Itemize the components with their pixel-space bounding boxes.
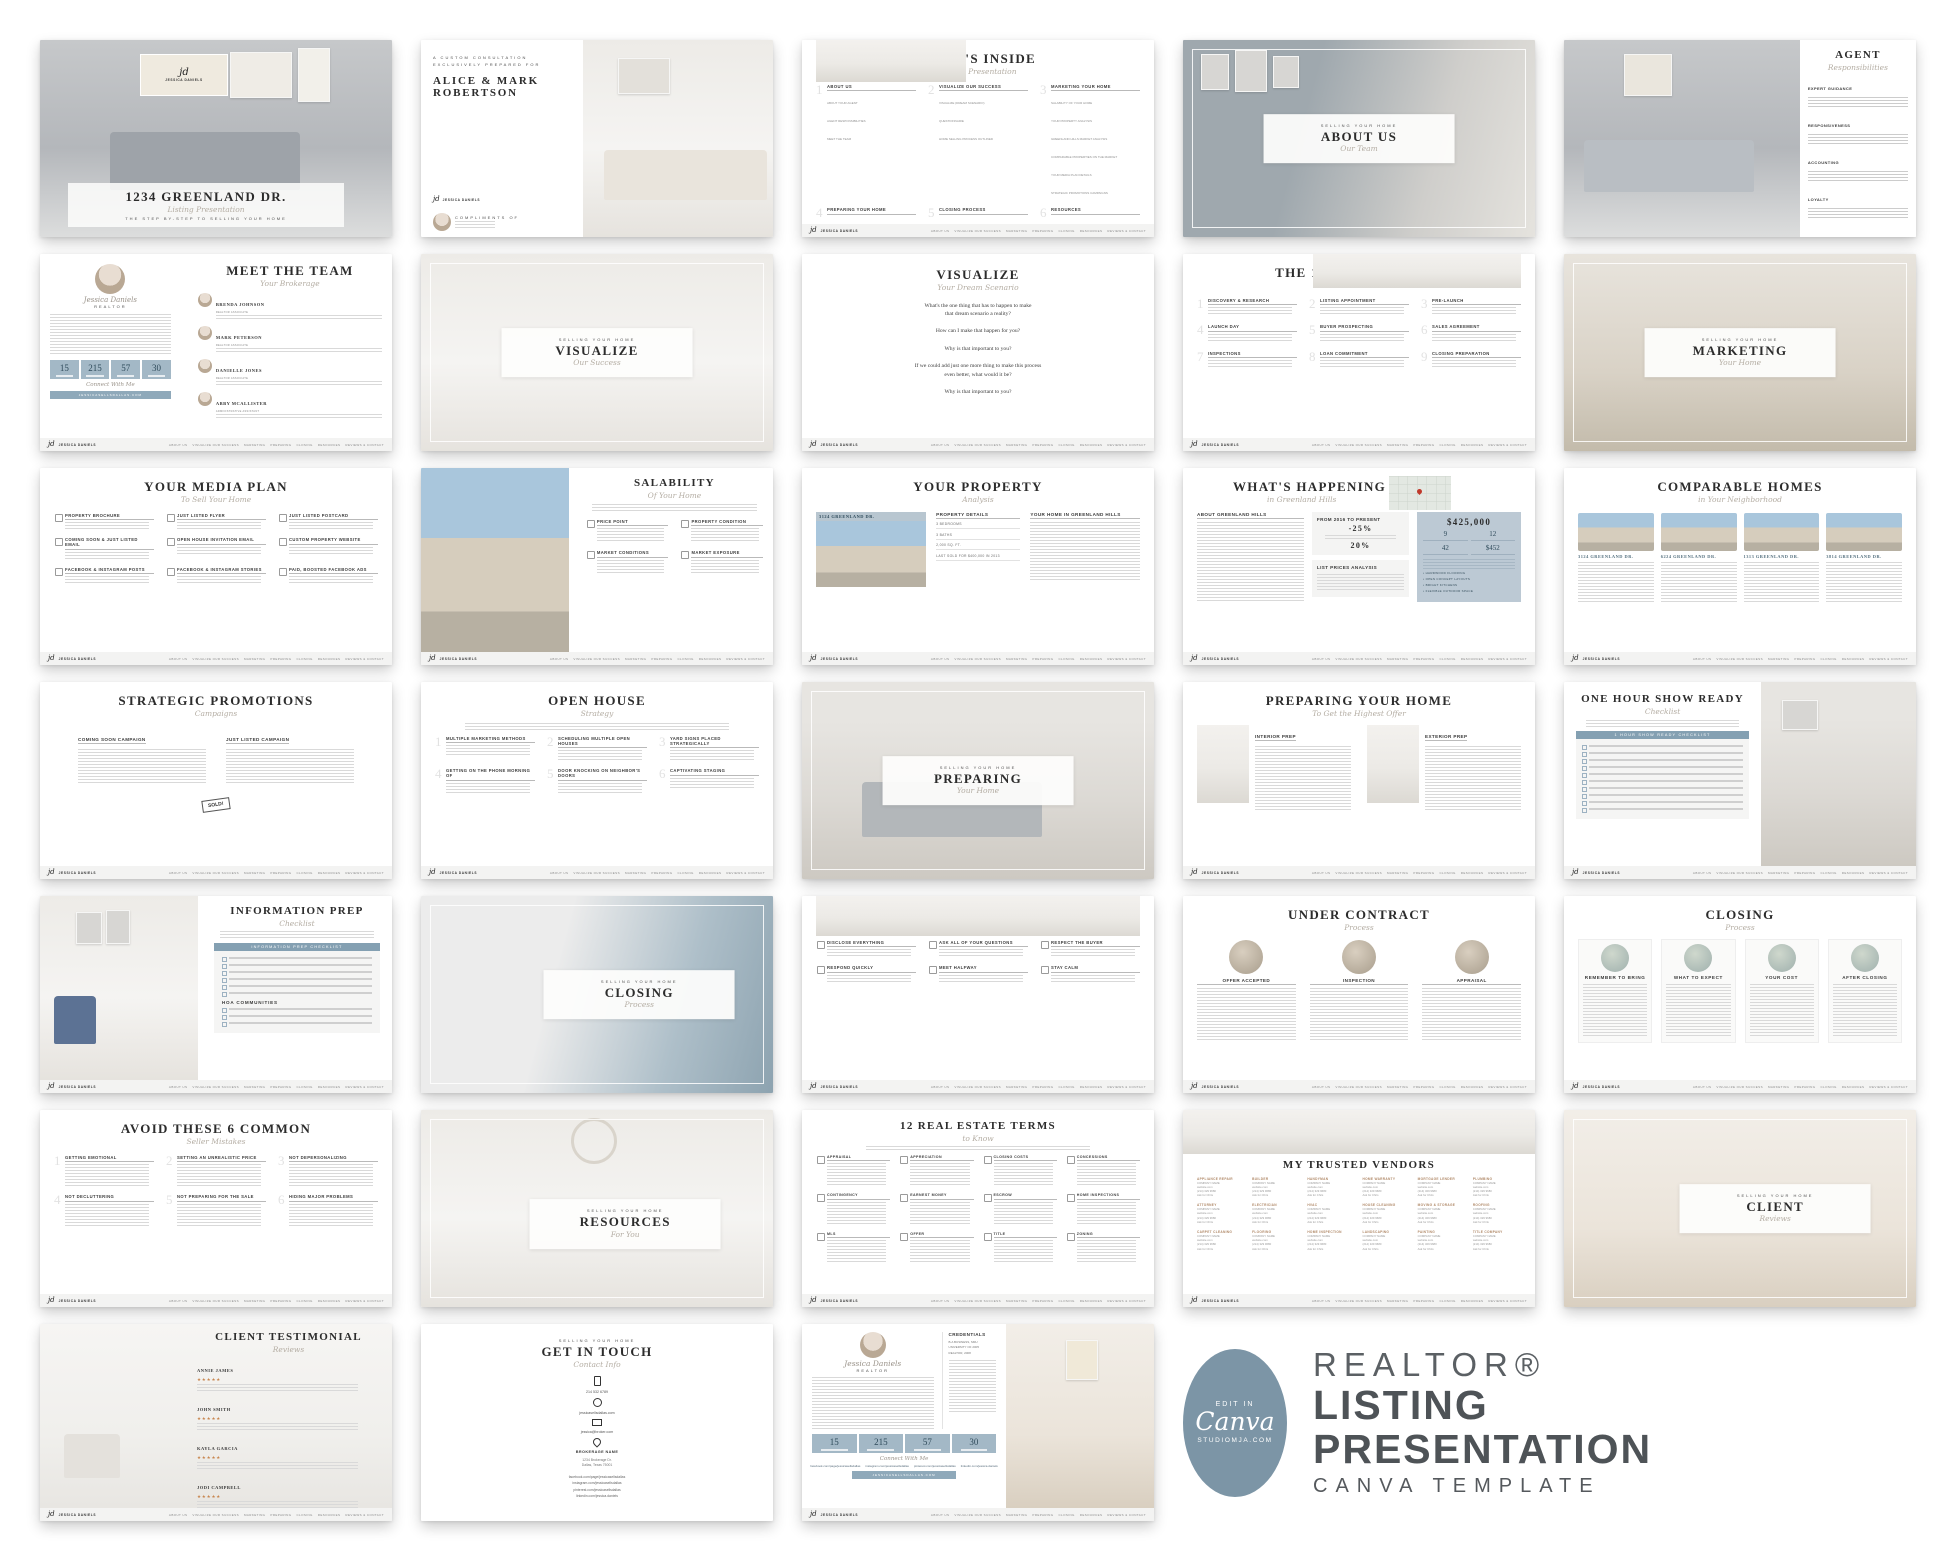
slide-script: Your Brokerage	[198, 279, 382, 288]
slide-title: AVOID THESE 6 COMMON	[54, 1122, 378, 1136]
agent-bio-panel: Jessica Daniels REALTOR 152155730 Connec…	[40, 254, 181, 438]
card-eyebrow: SELLING YOUR HOME	[1698, 1193, 1853, 1198]
buyer-wants-list: • HARDWOOD FLOORING• OPEN CONCEPT LAYOUT…	[1423, 571, 1515, 593]
connect-label: Connect With Me	[812, 1456, 996, 1462]
jd-logo: jd	[48, 869, 55, 876]
card-eyebrow: SELLING YOUR HOME	[548, 1208, 703, 1213]
jd-logo: jd	[810, 227, 817, 234]
map-pin-icon	[1416, 488, 1423, 495]
jd-logo: jd	[433, 196, 440, 203]
slide-footer-nav: jd JESSICA DANIELS ABOUT USVISUALIZE OUR…	[1183, 866, 1535, 879]
slide-marketing-photo: SELLING YOUR HOME MARKETING Your Home	[1564, 254, 1916, 451]
property-address: 3124 GREENLAND DR.	[816, 512, 926, 521]
slide-script: Campaigns	[54, 709, 378, 718]
shelf-decor	[618, 58, 670, 94]
slide-seller-mistakes: AVOID THESE 6 COMMON Seller Mistakes GET…	[40, 1110, 392, 1307]
slide-resources-photo: SELLING YOUR HOME RESOURCES For You	[421, 1110, 773, 1307]
slide-script: Process	[562, 1000, 717, 1009]
intro-placeholder	[866, 1146, 1090, 1151]
slide-title: OPEN HOUSE	[435, 694, 759, 708]
slide-comparable-homes: COMPARABLE HOMES in Your Neighborhood 31…	[1564, 468, 1916, 665]
slide-script: Seller Mistakes	[54, 1137, 378, 1146]
card-eyebrow: SELLING YOUR HOME	[1282, 123, 1437, 128]
footer-nav-items: ABOUT USVISUALIZE OUR SUCCESSMARKETINGPR…	[931, 1513, 1146, 1517]
phone-icon	[594, 1376, 601, 1386]
branding-line-canva-template: CANVA TEMPLATE	[1313, 1475, 1652, 1498]
footer-nav-items: ABOUT USVISUALIZE OUR SUCCESSMARKETINGPR…	[1693, 657, 1908, 661]
jd-logo: jd	[1191, 869, 1198, 876]
slide-information-prep: INFORMATION PREP Checklist INFORMATION P…	[40, 896, 392, 1093]
jd-logo: jd	[48, 1297, 55, 1304]
responsibilities-panel: AGENT Responsibilities EXPERT GUIDANCE R…	[1800, 40, 1916, 237]
footer-nav-items: ABOUT USVISUALIZE OUR SUCCESSMARKETINGPR…	[169, 1299, 384, 1303]
bio-placeholder	[50, 314, 171, 354]
agent-script-name: Jessica Daniels	[812, 1359, 934, 1368]
agent-name-label: JESSICA DANIELS	[821, 1299, 858, 1303]
slide-footer-nav: jd JESSICA DANIELS ABOUT USVISUALIZE OUR…	[1183, 1080, 1535, 1093]
sofa-photo	[1564, 40, 1800, 237]
wall-art	[298, 48, 330, 102]
slide-footer-nav: jd JESSICA DANIELS ABOUT USVISUALIZE OUR…	[802, 652, 1154, 665]
armchair-shape	[64, 1434, 120, 1478]
agent-name-label: JESSICA DANIELS	[59, 1299, 96, 1303]
footer-nav-items: ABOUT USVISUALIZE OUR SUCCESSMARKETINGPR…	[1312, 871, 1527, 875]
slide-title: INFORMATION PREP	[214, 906, 380, 918]
checklist-header: INFORMATION PREP CHECKLIST	[214, 943, 380, 951]
stat-decrease: -25%	[1317, 525, 1404, 533]
slide-footer-nav: jd JESSICA DANIELS ABOUT USVISUALIZE OUR…	[40, 1080, 392, 1093]
slide-title: UNDER CONTRACT	[1197, 908, 1521, 922]
card-eyebrow: SELLING YOUR HOME	[520, 337, 675, 342]
agent-name-label: JESSICA DANIELS	[165, 78, 202, 82]
slide-script: Reviews	[1698, 1214, 1853, 1223]
template-preview-board: jd JESSICA DANIELS 1234 GREENLAND DR. Li…	[0, 0, 1946, 1557]
slide-script: Checklist	[1576, 707, 1749, 716]
comparable-cards: 3124 GREENLAND DR. 6224 GREENLAND DR. 13…	[1578, 513, 1902, 602]
neighborhood-map	[1389, 476, 1451, 510]
slide-strategic-promotions: STRATEGIC PROMOTIONS Campaigns COMING SO…	[40, 682, 392, 879]
term-items: APPRAISALAPPRECIATIONCLOSING COSTSCONCES…	[816, 1155, 1140, 1265]
slide-title: CLIENT TESTIMONIAL	[197, 1332, 380, 1344]
slide-script: To Get the Highest Offer	[1197, 709, 1521, 718]
agent-name-label: JESSICA DANIELS	[821, 229, 858, 233]
client-name-line2: ROBERTSON	[433, 88, 571, 100]
slide-open-house: OPEN HOUSE Strategy MULTIPLE MARKETING M…	[421, 682, 773, 879]
text-placeholder	[1325, 535, 1396, 540]
agent-role: REALTOR	[50, 304, 171, 309]
title-card: SELLING YOUR HOME VISUALIZE Our Success	[502, 328, 693, 378]
wall-art	[1201, 54, 1229, 90]
house-exterior-photo	[421, 468, 569, 652]
globe-icon	[593, 1398, 602, 1407]
slide-footer-nav: jd JESSICA DANIELS ABOUT USVISUALIZE OUR…	[421, 866, 773, 879]
compliments-label: COMPLIMENTS OF	[455, 215, 519, 220]
text-placeholder	[455, 221, 495, 229]
market-stats: FROM 2016 TO PRESENT -25% 20% LIST PRICE…	[1312, 512, 1409, 602]
mistake-items: GETTING EMOTIONALSETTING AN UNREALISTIC …	[54, 1155, 378, 1226]
process-steps: DISCOVERY & RESEARCHLISTING APPOINTMENTP…	[1197, 298, 1521, 370]
brokerage-name: BROKERAGE NAME	[576, 1450, 619, 1454]
about-neighborhood: ABOUT GREENLAND HILLS	[1197, 512, 1304, 602]
avg-price: $425,000	[1423, 518, 1515, 527]
jd-logo: jd	[1191, 655, 1198, 662]
slide-script: Our Success	[520, 358, 675, 367]
agenda-items: ABOUT USABOUT YOUR AGENT AGENT RESPONSIB…	[816, 84, 1140, 237]
text-placeholder	[949, 1360, 997, 1412]
slide-footer-nav: jd JESSICA DANIELS ABOUT USVISUALIZE OUR…	[1564, 652, 1916, 665]
agent-name-label: JESSICA DANIELS	[821, 657, 858, 661]
slide-title: STRATEGIC PROMOTIONS	[54, 694, 378, 708]
slide-trusted-vendors: MY TRUSTED VENDORS APPLIANCE REPAIR COMP…	[1183, 1110, 1535, 1307]
slide-title: AGENT	[1808, 50, 1908, 62]
intro-eyebrow: A CUSTOM CONSULTATION EXCLUSIVELY PREPAR…	[433, 54, 571, 68]
footer-nav-items: ABOUT USVISUALIZE OUR SUCCESSMARKETINGPR…	[169, 657, 384, 661]
from-heading: FROM 2016 TO PRESENT	[1317, 517, 1404, 523]
footer-nav-items: ABOUT USVISUALIZE OUR SUCCESSMARKETINGPR…	[169, 1085, 384, 1089]
slide-script: Reviews	[197, 1345, 380, 1354]
jd-logo: jd	[1572, 655, 1579, 662]
list-price-heading: LIST PRICES ANALYSIS	[1317, 565, 1404, 571]
intro-placeholder	[1586, 720, 1739, 727]
bio-panel: Jessica Daniels REALTOR CREDENTIALS B.A …	[802, 1324, 1006, 1508]
title-card: SELLING YOUR HOME CLOSING Process	[544, 970, 735, 1020]
slide-title: ABOUT US	[1282, 130, 1437, 144]
intro-placeholder	[220, 931, 374, 940]
slide-agent-responsibilities: AGENT Responsibilities EXPERT GUIDANCE R…	[1564, 40, 1916, 237]
wall-art	[230, 52, 292, 98]
agent-role: REALTOR	[812, 1368, 934, 1373]
slide-ten-step-process: THE 10-STEP PROCESS To Sell Your Home DI…	[1183, 254, 1535, 451]
highlight-sidebar: $425,000 91242$452 • HARDWOOD FLOORING• …	[1417, 512, 1521, 602]
interior-photo	[816, 40, 966, 82]
slide-whats-inside: WHAT'S INSIDE Sellers Presentation ABOUT…	[802, 40, 1154, 237]
slide-footer-nav: jd JESSICA DANIELS ABOUT USVISUALIZE OUR…	[802, 1508, 1154, 1521]
campaign-sections: COMING SOON CAMPAIGN JUST LISTED CAMPAIG…	[78, 728, 354, 783]
branding-line-presentation: PRESENTATION	[1313, 1427, 1652, 1471]
jd-logo: jd	[1572, 869, 1579, 876]
wall-art	[1273, 56, 1299, 88]
slide-title: MY TRUSTED VENDORS	[1197, 1160, 1521, 1172]
slide-closing-process: CLOSING Process REMEMBER TO BRING WHAT T…	[1564, 896, 1916, 1093]
slide-visualize-questions: VISUALIZE Your Dream Scenario What's the…	[802, 254, 1154, 451]
slide-title: CLOSING	[1578, 908, 1902, 922]
slide-title: VISUALIZE	[520, 344, 675, 358]
slide-script: Your Dream Scenario	[816, 283, 1140, 292]
slide-title: MARKETING	[1663, 344, 1818, 358]
agent-name-label: JESSICA DANIELS	[1202, 871, 1239, 875]
slide-title: 12 REAL ESTATE TERMS	[816, 1121, 1140, 1133]
slide-script: Of Your Home	[586, 491, 763, 500]
jd-logo: jd	[1572, 1083, 1579, 1090]
slide-intro: A CUSTOM CONSULTATION EXCLUSIVELY PREPAR…	[421, 40, 773, 237]
checklist-panel: ONE HOUR SHOW READY Checklist 1 HOUR SHO…	[1564, 682, 1761, 866]
bio-placeholder	[812, 1377, 934, 1429]
slide-footer-nav: jd JESSICA DANIELS ABOUT USVISUALIZE OUR…	[1183, 438, 1535, 451]
title-card: SELLING YOUR HOME RESOURCES For You	[530, 1199, 721, 1249]
slide-preparing-home: PREPARING YOUR HOME To Get the Highest O…	[1183, 682, 1535, 879]
slide-title: CLIENT	[1698, 1200, 1853, 1214]
slide-footer-nav: jd JESSICA DANIELS ABOUT USVISUALIZE OUR…	[421, 652, 773, 665]
footer-nav-items: ABOUT USVISUALIZE OUR SUCCESSMARKETINGPR…	[1312, 657, 1527, 661]
wall-art	[1235, 50, 1267, 92]
agent-name-label: JESSICA DANIELS	[59, 657, 96, 661]
wall-art	[1066, 1340, 1098, 1380]
footer-nav-items: ABOUT USVISUALIZE OUR SUCCESSMARKETINGPR…	[1693, 1085, 1908, 1089]
credentials-heading: CREDENTIALS	[949, 1332, 997, 1338]
slide-footer-nav: jd JESSICA DANIELS ABOUT USVISUALIZE OUR…	[40, 438, 392, 451]
agent-name-label: JESSICA DANIELS	[821, 443, 858, 447]
slide-preparing-photo: SELLING YOUR HOME PREPARING Your Home	[802, 682, 1154, 879]
cover-tagline: THE STEP BY-STEP TO SELLING YOUR HOME	[74, 216, 338, 221]
armchair-shape	[54, 996, 96, 1044]
intro-placeholder	[465, 723, 729, 731]
card-eyebrow: SELLING YOUR HOME	[435, 1338, 759, 1343]
agent-name-label: JESSICA DANIELS	[443, 198, 480, 202]
card-eyebrow: SELLING YOUR HOME	[901, 765, 1056, 770]
cover-script: Listing Presentation	[74, 205, 338, 214]
wall-art	[1782, 700, 1818, 730]
footer-nav-items: ABOUT USVISUALIZE OUR SUCCESSMARKETINGPR…	[931, 443, 1146, 447]
slide-script: to Know	[816, 1134, 1140, 1143]
checklist-items: HOA COMMUNITIES	[214, 951, 380, 1033]
slide-title: COMPARABLE HOMES	[1578, 480, 1902, 494]
branding-line-listing: LISTING	[1313, 1383, 1652, 1427]
property-details: PROPERTY DETAILS 3 BEDROOMS3 BATHS2,000 …	[936, 512, 1020, 587]
agent-name-label: JESSICA DANIELS	[59, 1085, 96, 1089]
slide-agent-bio: Jessica Daniels REALTOR CREDENTIALS B.A …	[802, 1324, 1154, 1521]
slide-footer-nav: jd JESSICA DANIELS ABOUT USVISUALIZE OUR…	[802, 1080, 1154, 1093]
logo-wall-art: jd JESSICA DANIELS	[140, 54, 228, 96]
hoa-heading: HOA COMMUNITIES	[222, 1000, 372, 1006]
email: jessica@broker.com	[581, 1430, 613, 1434]
jd-logo: jd	[810, 655, 817, 662]
slide-title: WHAT'S HAPPENING	[1197, 480, 1521, 494]
slide-footer-nav: jd JESSICA DANIELS ABOUT USVISUALIZE OUR…	[1183, 1294, 1535, 1307]
agent-name-label: JESSICA DANIELS	[59, 871, 96, 875]
title-card: SELLING YOUR HOME ABOUT US Our Team	[1264, 114, 1455, 164]
mirror-decor	[571, 1118, 617, 1164]
house-photo	[816, 521, 926, 587]
slide-script: Checklist	[214, 919, 380, 928]
media-items: PROPERTY BROCHUREJUST LISTED FLYERJUST L…	[54, 513, 378, 584]
agent-headshot	[95, 264, 125, 294]
team-panel: MEET THE TEAM Your Brokerage BRENDA JOHN…	[188, 254, 392, 438]
slide-script: Responsibilities	[1808, 63, 1908, 72]
agent-headshot	[860, 1332, 886, 1358]
jd-logo: jd	[810, 1297, 817, 1304]
about-heading: ABOUT GREENLAND HILLS	[1197, 512, 1304, 519]
slide-meet-team: Jessica Daniels REALTOR 152155730 Connec…	[40, 254, 392, 451]
checklist-header: 1 HOUR SHOW READY CHECKLIST	[1576, 731, 1749, 739]
sold-sign: SOLD!	[54, 793, 378, 811]
contract-columns: OFFER ACCEPTED INSPECTION APPRAISAL	[1197, 940, 1521, 1040]
slide-title: SALABILITY	[586, 478, 763, 490]
footer-nav-items: ABOUT USVISUALIZE OUR SUCCESSMARKETINGPR…	[931, 657, 1146, 661]
salability-items: PRICE POINTPROPERTY CONDITIONMARKET COND…	[586, 519, 763, 574]
team-members: BRENDA JOHNSON REALTOR ASSOCIATE MARK PE…	[198, 293, 382, 420]
slide-title: MEET THE TEAM	[198, 264, 382, 278]
reviews-panel: CLIENT TESTIMONIAL Reviews ANNIE JAMES ★…	[197, 1332, 380, 1510]
agent-name-label: JESSICA DANIELS	[1202, 1085, 1239, 1089]
footer-nav-items: ABOUT USVISUALIZE OUR SUCCESSMARKETINGPR…	[931, 229, 1146, 233]
slide-closing-photo: SELLING YOUR HOME CLOSING Process	[421, 896, 773, 1093]
title-card: SELLING YOUR HOME CLIENT Reviews	[1680, 1184, 1871, 1234]
wall-art	[1624, 54, 1672, 96]
slide-client-photo: SELLING YOUR HOME CLIENT Reviews	[1564, 1110, 1916, 1307]
agent-logo-row: jd JESSICA DANIELS	[433, 196, 480, 203]
slide-media-plan: YOUR MEDIA PLAN To Sell Your Home PROPER…	[40, 468, 392, 665]
prep-columns: INTERIOR PREP EXTERIOR PREP	[1197, 725, 1521, 810]
slide-script: in Greenland Hills	[1197, 495, 1521, 504]
title-card: SELLING YOUR HOME MARKETING Your Home	[1645, 328, 1836, 378]
sofa-shape	[110, 132, 300, 190]
slide-whats-happening: WHAT'S HAPPENING in Greenland Hills ABOU…	[1183, 468, 1535, 665]
footer-nav-items: ABOUT USVISUALIZE OUR SUCCESSMARKETINGPR…	[550, 871, 765, 875]
branding-line-realtor: REALTOR®	[1313, 1347, 1652, 1383]
slide-client-testimonial: CLIENT TESTIMONIAL Reviews ANNIE JAMES ★…	[40, 1324, 392, 1521]
email-icon	[592, 1419, 602, 1426]
social-handles: facebook.com/page/jessicasellsdallasinst…	[812, 1464, 996, 1468]
slide-script: Your Home	[901, 786, 1056, 795]
agent-name-label: JESSICA DANIELS	[821, 1085, 858, 1089]
property-photo-block: 3124 GREENLAND DR.	[816, 512, 926, 587]
phone-number: 214 532 6789	[586, 1390, 608, 1394]
agent-name-label: JESSICA DANIELS	[1583, 1085, 1620, 1089]
sofa-shape	[604, 150, 767, 200]
slide-your-property: YOUR PROPERTY Analysis 3124 GREENLAND DR…	[802, 468, 1154, 665]
jd-logo: jd	[1191, 1297, 1198, 1304]
cover-title-card: 1234 GREENLAND DR. Listing Presentation …	[68, 183, 344, 227]
text-placeholder	[1317, 574, 1404, 592]
wall-art	[76, 912, 102, 944]
agent-name-label: JESSICA DANIELS	[1202, 443, 1239, 447]
agent-name-label: JESSICA DANIELS	[1583, 871, 1620, 875]
slide-script: Your Home	[1663, 358, 1818, 367]
slide-script: Strategy	[435, 709, 759, 718]
agent-name-label: JESSICA DANIELS	[1202, 1299, 1239, 1303]
footer-nav-items: ABOUT USVISUALIZE OUR SUCCESSMARKETINGPR…	[550, 657, 765, 661]
text-placeholder	[1030, 522, 1140, 580]
right-heading: YOUR HOME IN GREENLAND HILLS	[1030, 512, 1140, 519]
slide-about-us: SELLING YOUR HOME ABOUT US Our Team	[1183, 40, 1535, 237]
jd-logo: jd	[179, 68, 189, 78]
jd-logo: jd	[429, 869, 436, 876]
slide-one-hour-show-ready: ONE HOUR SHOW READY Checklist 1 HOUR SHO…	[1564, 682, 1916, 879]
jd-logo: jd	[1191, 1083, 1198, 1090]
slide-title: CLOSING	[562, 986, 717, 1000]
details-heading: PROPERTY DETAILS	[936, 512, 1020, 519]
canva-logo: Canva	[1195, 1409, 1274, 1434]
slide-title: RESOURCES	[548, 1215, 703, 1229]
salability-panel: SALABILITY Of Your Home PRICE POINTPROPE…	[576, 468, 773, 652]
jd-logo: jd	[429, 655, 436, 662]
slide-title: GET IN TOUCH	[435, 1345, 759, 1359]
slide-script: For You	[548, 1230, 703, 1239]
jd-logo: jd	[810, 1511, 817, 1518]
responsibility-sections: EXPERT GUIDANCE RESPONSIVENESS ACCOUNTIN…	[1808, 77, 1908, 220]
footer-nav-items: ABOUT USVISUALIZE OUR SUCCESSMARKETINGPR…	[1312, 1085, 1527, 1089]
agent-name-label: JESSICA DANIELS	[1202, 657, 1239, 661]
cover-title: 1234 GREENLAND DR.	[74, 190, 338, 204]
connect-label: Connect With Me	[50, 382, 171, 388]
slide-script: Process	[1578, 923, 1902, 932]
jd-logo: jd	[48, 1083, 55, 1090]
wall-art	[106, 910, 130, 944]
agent-script-name: Jessica Daniels	[50, 296, 171, 304]
slide-visualize-photo: SELLING YOUR HOME VISUALIZE Our Success	[421, 254, 773, 451]
slide-script: in Your Neighborhood	[1578, 495, 1902, 504]
slide-title: PREPARING	[901, 772, 1056, 786]
compliments-block: COMPLIMENTS OF	[433, 213, 519, 231]
slide-footer-nav: jd JESSICA DANIELS ABOUT USVISUALIZE OUR…	[40, 1508, 392, 1521]
agent-headshot	[433, 213, 451, 231]
slide-script: Our Team	[1282, 144, 1437, 153]
sold-sign-label: SOLD!	[202, 797, 231, 813]
footer-nav-items: ABOUT USVISUALIZE OUR SUCCESSMARKETINGPR…	[1312, 443, 1527, 447]
intro-placeholder	[592, 504, 757, 513]
website: jessicasellsdallas.com	[579, 1411, 614, 1415]
checklist-items	[1576, 739, 1749, 819]
agent-name-label: JESSICA DANIELS	[1583, 657, 1620, 661]
slide-under-contract: UNDER CONTRACT Process OFFER ACCEPTED IN…	[1183, 896, 1535, 1093]
slide-footer-nav: jd JESSICA DANIELS ABOUT USVISUALIZE OUR…	[802, 1294, 1154, 1307]
agent-name-label: JESSICA DANIELS	[59, 443, 96, 447]
closing-columns: REMEMBER TO BRING WHAT TO EXPECT YOUR CO…	[1578, 939, 1902, 1043]
slide-title: YOUR PROPERTY	[816, 480, 1140, 494]
neighborhood-summary: YOUR HOME IN GREENLAND HILLS	[1030, 512, 1140, 587]
text-placeholder	[1423, 559, 1515, 569]
badge-site: STUDIOMJA.COM	[1197, 1437, 1272, 1444]
footer-nav-items: ABOUT USVISUALIZE OUR SUCCESSMARKETINGPR…	[931, 1299, 1146, 1303]
jd-logo: jd	[1191, 441, 1198, 448]
text-placeholder	[1197, 522, 1304, 602]
agent-stats-bar: 152155730	[812, 1434, 996, 1453]
slide-footer-nav: jd JESSICA DANIELS ABOUT USVISUALIZE OUR…	[40, 866, 392, 879]
canva-badge: EDIT IN Canva STUDIOMJA.COM	[1183, 1349, 1287, 1497]
agent-stats-bar: 152155730	[50, 360, 171, 379]
slide-footer-nav: jd JESSICA DANIELS ABOUT USVISUALIZE OUR…	[1564, 866, 1916, 879]
question-list: What's the one thing that has to happen …	[816, 302, 1140, 397]
brokerage-address: 1234 Brokerage Dr. Dallas, Texas 75001	[582, 1458, 612, 1469]
sofa-shape	[1584, 140, 1754, 192]
agent-name-label: JESSICA DANIELS	[440, 657, 477, 661]
vendor-grid: APPLIANCE REPAIR COMPANY NAME website.co…	[1197, 1177, 1521, 1251]
social-links: facebook.com/page/jessicasellsdallasinst…	[435, 1475, 759, 1499]
slide-footer-nav: jd JESSICA DANIELS ABOUT USVISUALIZE OUR…	[1183, 652, 1535, 665]
slide-negotiating: NEGOTIATING THE SALE Successfully DISCLO…	[802, 896, 1154, 1093]
website-button: JESSICASELLSDALLAS.COM	[852, 1471, 956, 1479]
slide-title: VISUALIZE	[816, 268, 1140, 282]
footer-nav-items: ABOUT USVISUALIZE OUR SUCCESSMARKETINGPR…	[1312, 1299, 1527, 1303]
footer-nav-items: ABOUT USVISUALIZE OUR SUCCESSMARKETINGPR…	[1693, 871, 1908, 875]
interior-photo	[1313, 254, 1521, 288]
bathroom-photo	[1183, 1110, 1535, 1154]
interior-photo-strip	[816, 896, 1140, 936]
living-room-photo	[583, 40, 773, 237]
slide-footer-nav: jd JESSICA DANIELS ABOUT USVISUALIZE OUR…	[802, 438, 1154, 451]
jd-logo: jd	[810, 441, 817, 448]
slide-title: YOUR MEDIA PLAN	[54, 480, 378, 494]
slide-footer-nav: jd JESSICA DANIELS ABOUT USVISUALIZE OUR…	[40, 652, 392, 665]
title-card: SELLING YOUR HOME PREPARING Your Home	[883, 756, 1074, 806]
slide-title: ONE HOUR SHOW READY	[1576, 694, 1749, 706]
slide-salability: SALABILITY Of Your Home PRICE POINTPROPE…	[421, 468, 773, 665]
footer-nav-items: ABOUT USVISUALIZE OUR SUCCESSMARKETINGPR…	[169, 871, 384, 875]
review-list: ANNIE JAMES ★★★★★ JOHN SMITH ★★★★★ KAYLA…	[197, 1359, 380, 1510]
sidebar-stats: 91242$452	[1423, 530, 1515, 555]
slide-cover: jd JESSICA DANIELS 1234 GREENLAND DR. Li…	[40, 40, 392, 237]
details-list: 3 BEDROOMS3 BATHS2,000 SQ. FT.LAST SOLD …	[936, 522, 1020, 561]
